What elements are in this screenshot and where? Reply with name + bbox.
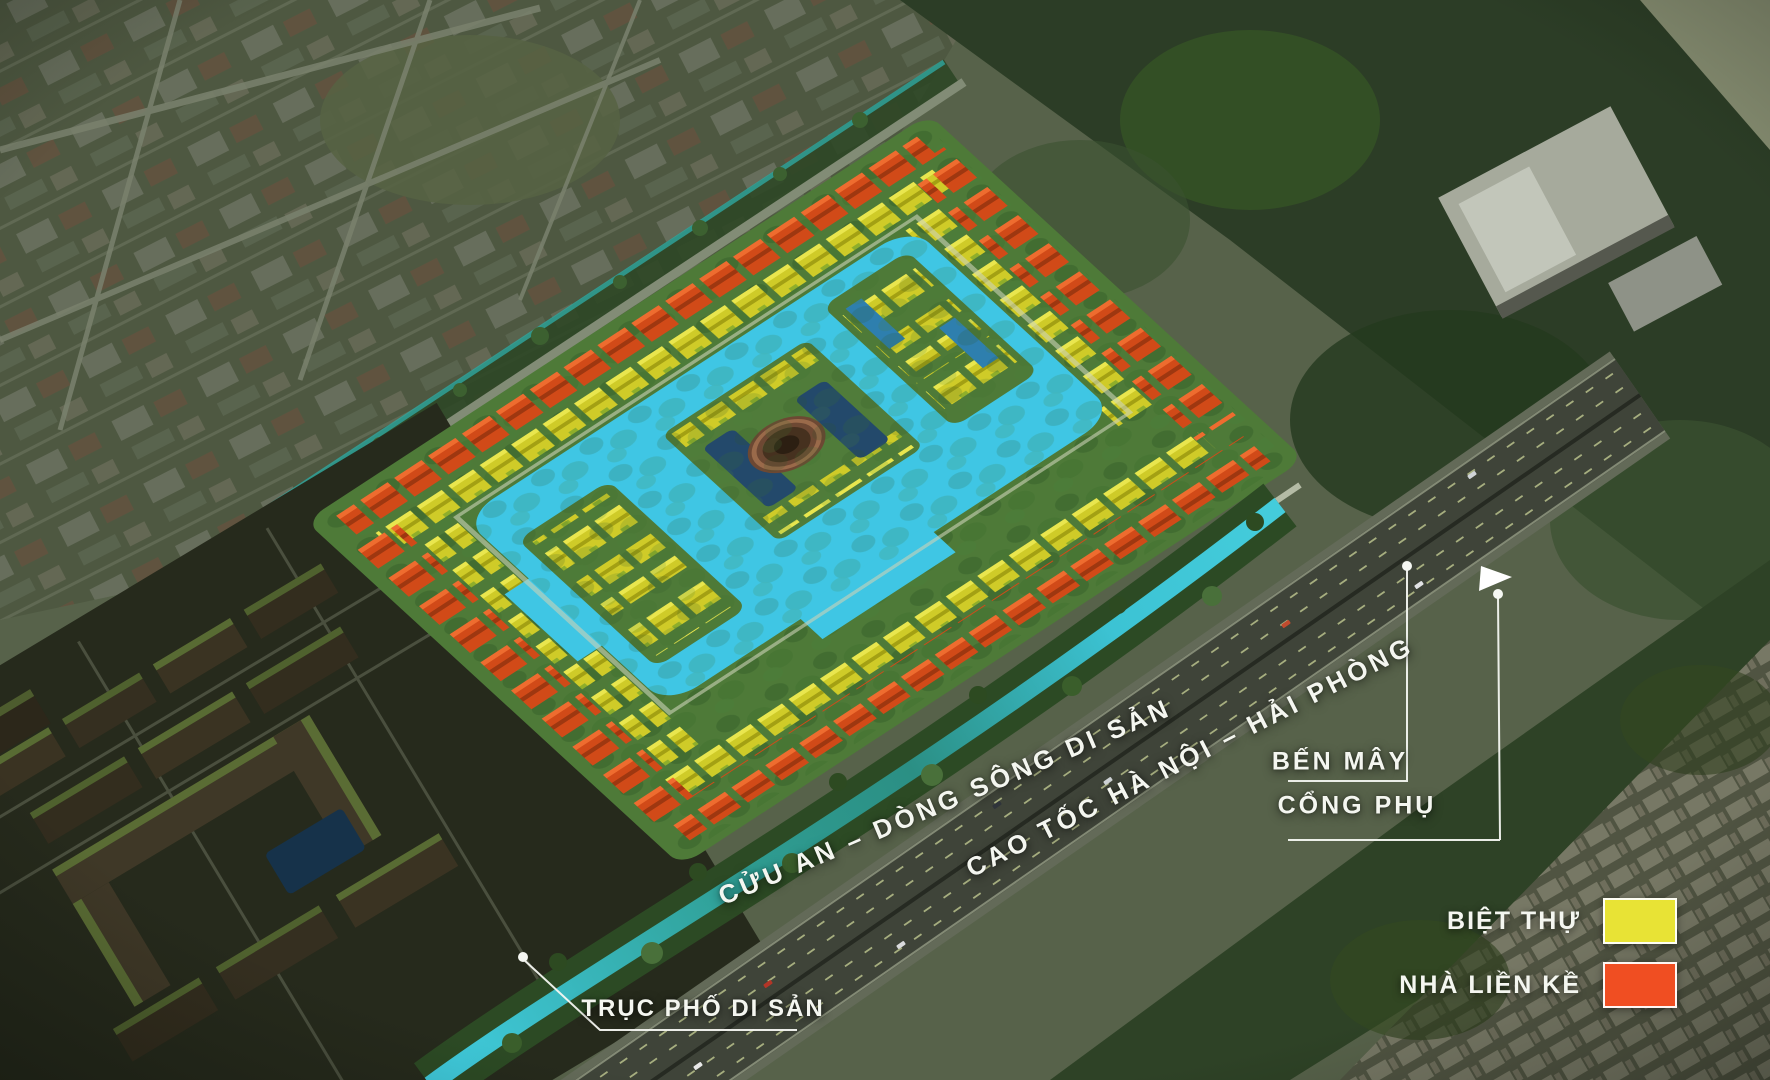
truc-pho-callout: TRỤC PHỐ DI SẢN [581, 995, 824, 1023]
legend-label-townhouse: NHÀ LIỀN KỀ [1399, 971, 1581, 1000]
legend: BIỆT THỰ NHÀ LIỀN KỀ [1399, 898, 1677, 1008]
cong-phu-callout: CỔNG PHỤ [1278, 792, 1437, 821]
cong-phu-anchor-dot [1493, 589, 1503, 599]
legend-item-townhouse: NHÀ LIỀN KỀ [1399, 962, 1677, 1008]
ben-may-callout: BẾN MÂY [1272, 748, 1408, 777]
legend-swatch-townhouse-orange [1603, 962, 1677, 1008]
ben-may-anchor-dot [1402, 561, 1412, 571]
masterplan-screenshot: CỬU AN – DÒNG SÔNG DI SẢN CAO TỐC HÀ NỘI… [0, 0, 1770, 1080]
legend-label-villa: BIỆT THỰ [1447, 907, 1581, 936]
legend-item-villa: BIỆT THỰ [1447, 898, 1677, 944]
truc-pho-anchor-dot [518, 952, 528, 962]
legend-swatch-villa-yellow [1603, 898, 1677, 944]
